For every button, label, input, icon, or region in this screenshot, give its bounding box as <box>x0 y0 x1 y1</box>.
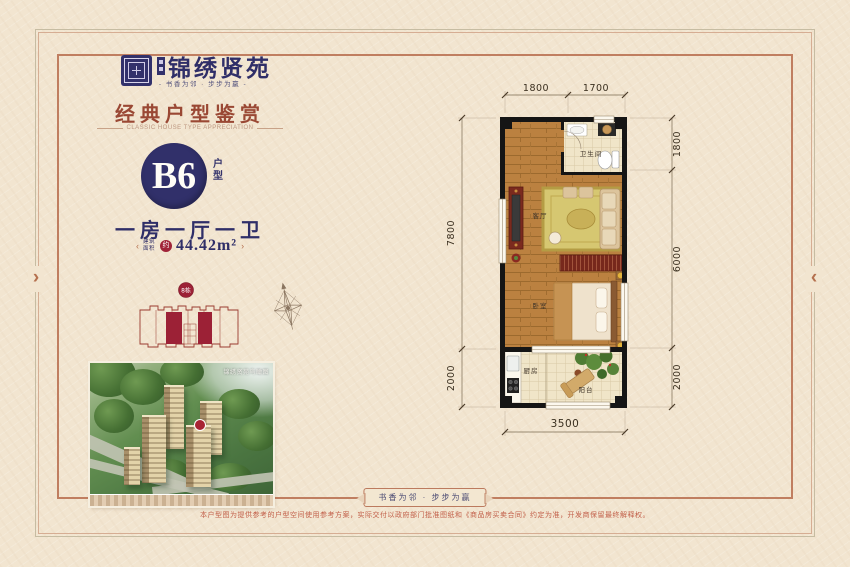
room-label-bathroom: 卫生间 <box>580 149 603 158</box>
divider-line <box>257 128 283 129</box>
divider-line <box>97 128 123 129</box>
frame-chevron-left-icon: › <box>28 266 44 292</box>
plant <box>597 369 607 379</box>
pillow <box>596 312 607 332</box>
section-subtitle-row: CLASSIC HOUSE TYPE APPRECIATION <box>92 125 288 131</box>
dim-right-2: 6000 <box>672 246 683 272</box>
room-label-living: 客厅 <box>533 211 548 220</box>
unit-area-row: ‹ 建筑面积 约 44.42m² › <box>90 237 290 255</box>
side-table <box>549 232 561 244</box>
tree-blob <box>238 421 273 451</box>
dim-left-1: 7800 <box>446 220 457 246</box>
section-subtitle: CLASSIC HOUSE TYPE APPRECIATION <box>127 125 254 131</box>
highlighted-unit <box>166 312 182 344</box>
tree-blob <box>120 369 166 405</box>
aerial-photo: 锦绣贤苑鸟瞰图 <box>90 363 273 506</box>
kitchen-sink <box>507 356 519 371</box>
building-outline <box>140 306 238 347</box>
room-label-kitchen: 厨房 <box>524 366 539 375</box>
brand-stamp-icon <box>157 57 165 75</box>
seal-pattern-icon <box>128 62 145 79</box>
plant <box>607 363 619 375</box>
bed-blanket <box>554 283 572 340</box>
dim-bottom: 3500 <box>551 418 580 430</box>
aerial-photo-scene: 锦绣贤苑鸟瞰图 <box>90 363 273 494</box>
stove <box>507 378 519 393</box>
tower-building <box>164 385 184 449</box>
sofa-seat <box>563 187 577 198</box>
section-title: 经典户型鉴赏 <box>90 98 290 127</box>
footer-banner: 书香为邻 · 步步为赢 <box>363 488 486 507</box>
ornament-right-icon: › <box>241 241 244 251</box>
ornament-left-icon: ‹ <box>136 241 139 251</box>
tree-blob <box>94 399 134 433</box>
dim-left-2: 2000 <box>446 365 457 391</box>
tower-building <box>186 425 211 487</box>
headboard <box>611 281 617 342</box>
approx-badge: 约 <box>160 240 172 252</box>
building-badge-label: 8栋 <box>181 287 191 295</box>
room-label-balcony: 阳台 <box>579 385 594 394</box>
photo-carved-band <box>90 494 273 506</box>
footer-disclaimer: 本户型图为提供参考的户型空间使用参考方案，实际交付以政府部门批准图纸和《商品房买… <box>0 510 850 520</box>
brand-tagline: - 书香为邻 · 步步为赢 - <box>118 78 288 88</box>
compass-icon <box>266 280 310 332</box>
room-label-bedroom: 卧室 <box>533 301 548 310</box>
tree-blob <box>218 389 260 419</box>
bedroom-furniture <box>554 271 625 350</box>
dim-top-1: 1800 <box>523 83 549 94</box>
dim-right-3: 2000 <box>672 364 683 390</box>
dim-right-1: 1800 <box>672 131 683 157</box>
area-label: 建筑面积 <box>143 239 156 253</box>
roof-badge-icon <box>194 419 206 431</box>
divider-dresser <box>560 255 623 271</box>
dim-top-2: 1700 <box>583 83 609 94</box>
tower-building <box>124 447 140 485</box>
unit-code-badge: B6 <box>141 143 207 209</box>
kitchen-fixtures <box>505 351 521 403</box>
floorplan-poster: › ‹ 锦绣贤苑 - 书香为邻 · 步步为赢 - 经典户型鉴赏 CLASSIC … <box>0 0 850 567</box>
area-value: 44.42m² <box>176 237 237 255</box>
sofa-seat <box>579 187 593 198</box>
hall-floor <box>505 122 564 175</box>
pillow <box>596 288 607 308</box>
frame-chevron-right-icon: ‹ <box>806 266 822 292</box>
tower-building <box>142 415 166 483</box>
unit-code-suffix: 户型 <box>213 159 224 183</box>
tv-screen <box>512 195 520 241</box>
site-plan: 8栋 <box>122 280 262 358</box>
highlighted-unit <box>198 312 212 344</box>
aerial-caption: 锦绣贤苑鸟瞰图 <box>223 367 269 376</box>
floorplan-drawing: 卫生间 客厅 卧室 厨房 阳台 1800 1700 18 <box>430 75 710 475</box>
